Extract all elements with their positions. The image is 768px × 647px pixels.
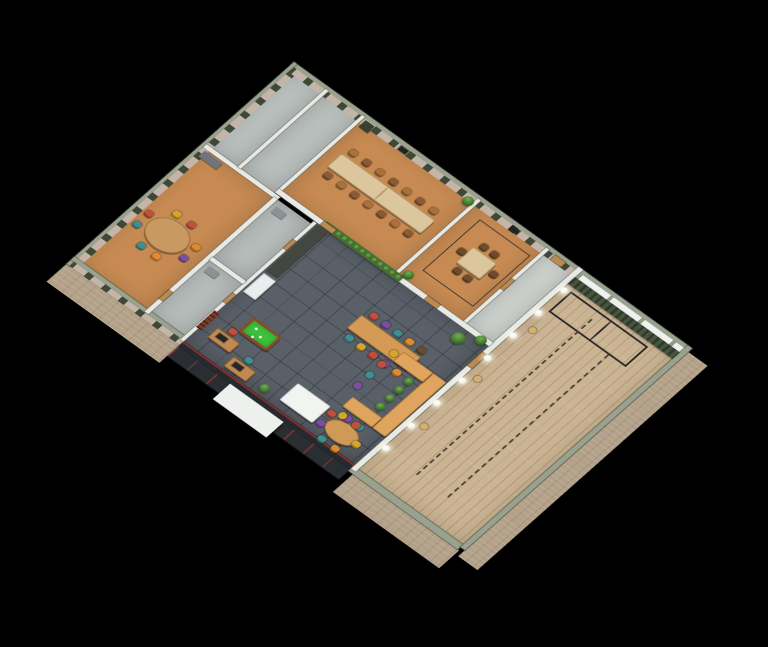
3d-viewport[interactable] (0, 0, 768, 647)
floor-plan (66, 62, 695, 552)
